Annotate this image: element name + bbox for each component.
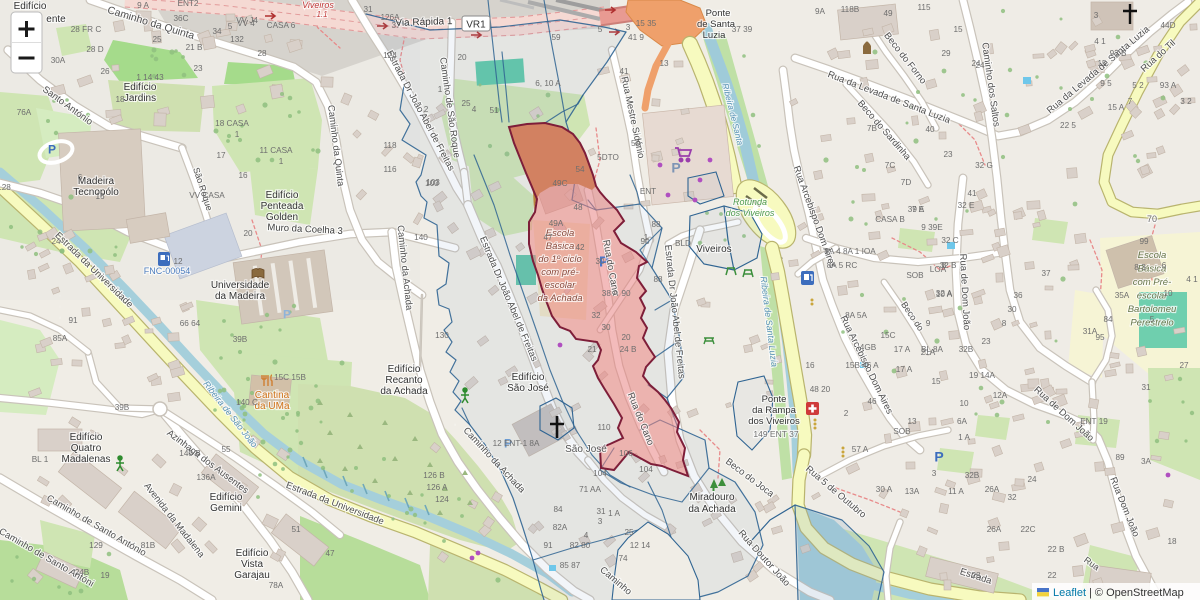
svg-text:22 5: 22 5	[1060, 121, 1076, 130]
svg-text:30: 30	[1007, 305, 1017, 314]
svg-text:28 D: 28 D	[86, 45, 103, 54]
svg-text:8 3: 8 3	[1134, 263, 1146, 272]
svg-text:3A: 3A	[1141, 457, 1152, 466]
svg-text:22 B: 22 B	[1048, 545, 1065, 554]
svg-text:ENT2: ENT2	[178, 0, 199, 8]
svg-text:76A: 76A	[17, 108, 32, 117]
svg-text:6: 6	[1162, 261, 1167, 270]
svg-text:1: 1	[438, 85, 443, 94]
svg-text:32: 32	[1007, 493, 1017, 502]
svg-text:32 C: 32 C	[941, 236, 958, 245]
svg-text:26A: 26A	[987, 525, 1002, 534]
svg-text:Vista: Vista	[241, 559, 263, 570]
svg-text:11 CASA: 11 CASA	[259, 146, 293, 155]
svg-text:24: 24	[1027, 475, 1037, 484]
svg-text:VV CASA: VV CASA	[189, 191, 225, 200]
svg-text:104: 104	[639, 465, 653, 474]
svg-text:46: 46	[867, 397, 877, 406]
svg-text:103: 103	[425, 179, 439, 188]
svg-text:1 14 43: 1 14 43	[136, 73, 164, 82]
svg-text:32 G: 32 G	[975, 161, 993, 170]
svg-text:124: 124	[383, 51, 397, 60]
svg-text:85A: 85A	[53, 334, 68, 343]
svg-text:Viveiros: Viveiros	[302, 0, 334, 10]
svg-text:27: 27	[1179, 361, 1189, 370]
svg-text:VR1: VR1	[466, 20, 486, 31]
svg-text:1: 1	[279, 157, 284, 166]
svg-text:3: 3	[1094, 11, 1099, 20]
svg-text:11 A: 11 A	[948, 487, 964, 496]
svg-text:140 C: 140 C	[236, 398, 258, 407]
svg-text:30: 30	[595, 257, 605, 266]
svg-text:Gemini: Gemini	[210, 503, 242, 514]
svg-text:3: 3	[626, 23, 631, 32]
svg-text:7D: 7D	[901, 178, 912, 187]
svg-text:4 1: 4 1	[1186, 275, 1198, 284]
svg-text:P: P	[283, 308, 291, 322]
svg-text:Edifício: Edifício	[14, 1, 47, 12]
svg-text:6: 6	[78, 173, 83, 182]
svg-text:ENT 19: ENT 19	[1080, 417, 1108, 426]
svg-text:37: 37	[391, 21, 401, 30]
svg-text:9 A: 9 A	[137, 1, 149, 10]
svg-text:88: 88	[651, 220, 661, 229]
svg-text:20: 20	[621, 333, 631, 342]
svg-text:3: 3	[598, 517, 603, 526]
svg-text:39B: 39B	[233, 335, 248, 344]
svg-text:Quatro: Quatro	[71, 443, 102, 454]
svg-text:BLD: BLD	[675, 239, 691, 248]
svg-text:12 14: 12 14	[630, 541, 651, 550]
svg-text:Escola: Escola	[1138, 250, 1167, 261]
svg-text:SOB: SOB	[906, 271, 924, 280]
svg-text:129: 129	[89, 541, 103, 550]
svg-text:6, 10 A: 6, 10 A	[535, 79, 561, 88]
svg-text:78A: 78A	[269, 581, 284, 590]
svg-text:8: 8	[942, 261, 947, 270]
svg-text:31: 31	[1141, 383, 1151, 392]
svg-text:15: 15	[931, 377, 941, 386]
svg-text:24: 24	[51, 237, 61, 246]
svg-text:CASA B: CASA B	[875, 215, 905, 224]
svg-text:dos Viveiros: dos Viveiros	[726, 208, 775, 218]
svg-text:15: 15	[1097, 59, 1107, 68]
svg-text:8A 4 8A 1 IOA: 8A 4 8A 1 IOA	[824, 247, 876, 256]
svg-text:51: 51	[489, 106, 499, 115]
svg-text:28 FR C: 28 FR C	[71, 25, 102, 34]
svg-text:9A: 9A	[815, 7, 826, 16]
svg-text:48 20: 48 20	[810, 385, 831, 394]
svg-text:SOB: SOB	[893, 427, 911, 436]
svg-text:74: 74	[618, 554, 628, 563]
svg-text:Via Rápida 1: Via Rápida 1	[395, 16, 453, 29]
svg-text:do 1º ciclo: do 1º ciclo	[538, 254, 582, 265]
svg-text:91: 91	[68, 316, 78, 325]
svg-text:84: 84	[1103, 315, 1113, 324]
svg-text:126 A: 126 A	[427, 483, 448, 492]
svg-text:P: P	[934, 448, 943, 464]
svg-text:85 87: 85 87	[560, 561, 581, 570]
svg-text:Edifício: Edifício	[512, 372, 545, 383]
svg-text:1 A: 1 A	[608, 509, 620, 518]
svg-text:7C: 7C	[885, 161, 896, 170]
svg-text:130: 130	[435, 331, 449, 340]
svg-text:49C: 49C	[552, 179, 567, 188]
svg-text:19: 19	[100, 571, 110, 580]
svg-text:de Santa: de Santa	[697, 19, 736, 30]
svg-text:55: 55	[221, 445, 231, 454]
svg-text:Miradouro: Miradouro	[689, 492, 734, 503]
svg-text:4 1: 4 1	[1094, 37, 1106, 46]
svg-text:P: P	[48, 143, 56, 157]
svg-text:8: 8	[1002, 319, 1007, 328]
svg-text:Edifício: Edifício	[124, 82, 157, 93]
svg-text:140 B: 140 B	[179, 449, 201, 458]
svg-text:9 39E: 9 39E	[921, 223, 943, 232]
svg-text:5A: 5A	[631, 139, 642, 148]
svg-text:12: 12	[173, 257, 183, 266]
svg-text:124: 124	[435, 495, 449, 504]
svg-text:Penteada: Penteada	[261, 201, 304, 212]
svg-text:dos Viveiros: dos Viveiros	[748, 416, 800, 427]
svg-text:132: 132	[230, 35, 244, 44]
svg-text:88: 88	[653, 275, 663, 284]
svg-text:54: 54	[575, 165, 585, 174]
svg-text:66 64: 66 64	[180, 319, 201, 328]
svg-text:19 14A: 19 14A	[969, 371, 995, 380]
svg-text:84: 84	[553, 505, 563, 514]
svg-text:17 A: 17 A	[894, 345, 911, 354]
svg-text:5: 5	[1150, 315, 1155, 324]
svg-text:57 A: 57 A	[852, 445, 869, 454]
svg-text:16: 16	[95, 192, 105, 201]
svg-text:2: 2	[424, 105, 429, 114]
svg-text:89: 89	[1115, 453, 1125, 462]
svg-text:Ponte: Ponte	[706, 8, 731, 19]
svg-text:118: 118	[383, 141, 396, 150]
svg-text:Jardins: Jardins	[124, 93, 156, 104]
svg-text:93 A: 93 A	[1160, 81, 1177, 90]
svg-text:5DTO: 5DTO	[597, 153, 619, 162]
svg-text:30 A: 30 A	[876, 485, 893, 494]
svg-text:10: 10	[959, 399, 969, 408]
svg-text:110: 110	[597, 423, 610, 432]
svg-text:9: 9	[926, 319, 931, 328]
svg-text:17 A: 17 A	[896, 365, 913, 374]
svg-text:17: 17	[216, 151, 226, 160]
svg-text:Bartolomeu: Bartolomeu	[1128, 304, 1177, 315]
svg-text:FNC-00054: FNC-00054	[144, 266, 191, 276]
svg-text:Edifício: Edifício	[266, 190, 299, 201]
svg-text:8A 5 RC: 8A 5 RC	[827, 261, 858, 270]
svg-text:Madeira: Madeira	[78, 176, 115, 187]
svg-text:Luzia: Luzia	[703, 30, 726, 41]
svg-text:15C 15B: 15C 15B	[274, 373, 306, 382]
svg-text:12A: 12A	[993, 391, 1008, 400]
svg-text:1 A: 1 A	[958, 433, 970, 442]
svg-text:15 35: 15 35	[636, 19, 657, 28]
svg-text:34: 34	[212, 27, 222, 36]
svg-text:104: 104	[593, 469, 607, 478]
svg-text:48: 48	[573, 203, 583, 212]
svg-text:32: 32	[591, 311, 601, 320]
svg-text:Viveiros: Viveiros	[696, 244, 731, 255]
svg-text:da Madeira: da Madeira	[215, 291, 265, 302]
svg-text:41: 41	[967, 189, 977, 198]
svg-text:2: 2	[844, 409, 849, 418]
svg-text:25: 25	[461, 99, 471, 108]
svg-text:CASA 6: CASA 6	[267, 21, 296, 30]
svg-text:41: 41	[619, 67, 629, 76]
svg-text:10: 10	[1163, 289, 1173, 298]
svg-text:47: 47	[543, 233, 553, 242]
svg-text:30: 30	[601, 323, 611, 332]
svg-text:7B: 7B	[867, 124, 878, 133]
svg-text:Rotunda: Rotunda	[733, 197, 767, 207]
svg-text:Universidade: Universidade	[211, 280, 270, 291]
svg-text:16: 16	[805, 361, 815, 370]
svg-text:Ponte: Ponte	[762, 394, 787, 405]
svg-text:ENT: ENT	[640, 187, 656, 196]
svg-text:26A: 26A	[985, 485, 1000, 494]
svg-text:Madalenas: Madalenas	[62, 454, 111, 465]
svg-text:da Achada: da Achada	[380, 386, 428, 397]
svg-text:22C: 22C	[1020, 525, 1035, 534]
svg-text:39 A: 39 A	[908, 205, 925, 214]
svg-text:49A: 49A	[549, 219, 564, 228]
svg-text:39B: 39B	[115, 403, 130, 412]
svg-text:35A: 35A	[1115, 291, 1130, 300]
svg-text:1: 1	[235, 130, 240, 139]
svg-text:21A: 21A	[921, 348, 936, 357]
svg-text:49: 49	[883, 9, 893, 18]
svg-text:106: 106	[619, 449, 633, 458]
svg-text:São José: São José	[565, 444, 607, 455]
svg-text:24 B: 24 B	[620, 345, 637, 354]
svg-text:91: 91	[543, 541, 553, 550]
svg-text:99: 99	[1139, 237, 1149, 246]
svg-text:Cantina: Cantina	[255, 390, 290, 401]
svg-text:4: 4	[472, 105, 477, 114]
svg-text:90: 90	[640, 237, 650, 246]
svg-text:15: 15	[953, 25, 963, 34]
svg-text:13: 13	[659, 59, 669, 68]
svg-text:22: 22	[1047, 571, 1057, 580]
svg-text:40: 40	[925, 125, 935, 134]
svg-text:Básica: Básica	[546, 241, 575, 252]
svg-text:82A: 82A	[553, 523, 568, 532]
svg-text:20: 20	[243, 229, 253, 238]
svg-text:| © OpenStreetMap: | © OpenStreetMap	[1089, 587, 1184, 599]
svg-text:25: 25	[624, 528, 634, 537]
svg-text:128: 128	[0, 183, 11, 192]
svg-text:59: 59	[551, 33, 561, 42]
svg-text:37 39: 37 39	[732, 25, 753, 34]
svg-text:da Rampa: da Rampa	[752, 405, 797, 416]
svg-text:12 ENT-1 8A: 12 ENT-1 8A	[493, 439, 540, 448]
svg-text:Edifício: Edifício	[236, 548, 269, 559]
svg-text:41 9: 41 9	[628, 33, 644, 42]
svg-text:16: 16	[238, 171, 248, 180]
svg-text:ente: ente	[46, 14, 66, 25]
svg-text:4: 4	[584, 531, 589, 540]
svg-text:28: 28	[257, 49, 267, 58]
svg-text:9 5: 9 5	[1100, 79, 1112, 88]
svg-text:140: 140	[414, 233, 428, 242]
svg-text:da Achada: da Achada	[688, 504, 736, 515]
svg-text:3 2: 3 2	[1180, 97, 1192, 106]
svg-text:da UMa: da UMa	[254, 401, 289, 412]
svg-text:6A: 6A	[957, 417, 968, 426]
svg-text:3: 3	[932, 469, 937, 478]
svg-text:Leaflet: Leaflet	[1053, 587, 1086, 599]
svg-text:VV 4: VV 4	[237, 19, 255, 28]
svg-text:71 AA: 71 AA	[579, 485, 601, 494]
svg-text:com pré-: com pré-	[541, 267, 578, 278]
svg-text:Edifício: Edifício	[210, 492, 243, 503]
svg-text:18: 18	[1167, 537, 1177, 546]
svg-text:32B: 32B	[965, 471, 980, 480]
svg-text:BL 1: BL 1	[32, 455, 49, 464]
svg-text:32 E: 32 E	[958, 201, 975, 210]
svg-text:Recanto: Recanto	[385, 375, 423, 386]
svg-text:25: 25	[152, 35, 162, 44]
svg-text:23: 23	[193, 64, 203, 73]
svg-text:90: 90	[621, 289, 631, 298]
svg-text:Golden: Golden	[266, 212, 298, 223]
svg-text:115: 115	[917, 3, 930, 12]
svg-text:24B: 24B	[75, 568, 90, 577]
svg-text:28: 28	[971, 571, 981, 580]
svg-text:15C: 15C	[880, 331, 895, 340]
svg-text:31: 31	[596, 507, 606, 516]
svg-text:47: 47	[325, 549, 335, 558]
svg-text:da Achada: da Achada	[537, 293, 582, 304]
svg-text:com Pré-: com Pré-	[1133, 277, 1172, 288]
svg-text:44D: 44D	[1160, 21, 1175, 30]
svg-text:18: 18	[115, 95, 125, 104]
svg-text:5 2: 5 2	[1132, 81, 1144, 90]
svg-text:20: 20	[457, 53, 467, 62]
svg-text:93 B: 93 B	[1110, 49, 1127, 58]
svg-text:13: 13	[907, 417, 917, 426]
svg-text:82 80: 82 80	[570, 541, 591, 550]
svg-text:23: 23	[943, 150, 953, 159]
svg-text:Edifício: Edifício	[70, 432, 103, 443]
svg-text:26: 26	[100, 67, 110, 76]
svg-text:15 A: 15 A	[1108, 103, 1125, 112]
svg-text:31A: 31A	[1083, 327, 1098, 336]
svg-text:116: 116	[383, 165, 396, 174]
svg-text:24: 24	[971, 59, 981, 68]
svg-text:36C: 36C	[173, 14, 188, 23]
svg-text:18 CASA: 18 CASA	[215, 119, 249, 128]
svg-text:38 A: 38 A	[602, 289, 619, 298]
svg-text:5: 5	[228, 22, 233, 31]
svg-text:51: 51	[291, 525, 301, 534]
svg-text:21 B: 21 B	[186, 43, 203, 52]
svg-text:21: 21	[587, 345, 597, 354]
svg-text:5: 5	[598, 25, 603, 34]
svg-text:32B: 32B	[959, 345, 974, 354]
svg-text:23: 23	[981, 337, 991, 346]
svg-text:31: 31	[363, 5, 373, 14]
svg-text:Garajau: Garajau	[234, 570, 270, 581]
svg-text:81B: 81B	[141, 541, 156, 550]
svg-text:149 ENT 37: 149 ENT 37	[753, 429, 798, 439]
svg-text:Edifício: Edifício	[388, 364, 421, 375]
svg-text:15B 46 A: 15B 46 A	[845, 361, 879, 370]
svg-text:escolar: escolar	[545, 280, 576, 291]
svg-text:126 B: 126 B	[423, 471, 445, 480]
svg-text:70: 70	[1147, 214, 1157, 224]
svg-text:13A: 13A	[905, 487, 920, 496]
svg-text:1.1: 1.1	[316, 10, 327, 19]
svg-text:42: 42	[575, 243, 585, 252]
svg-text:136A: 136A	[196, 473, 216, 482]
svg-text:29: 29	[941, 49, 951, 58]
svg-text:7: 7	[1128, 97, 1133, 106]
svg-text:32 A: 32 A	[936, 289, 953, 298]
svg-text:São José: São José	[507, 383, 549, 394]
svg-text:30A: 30A	[51, 56, 66, 65]
svg-text:4GB: 4GB	[860, 343, 877, 352]
svg-text:37: 37	[1041, 269, 1051, 278]
svg-text:36: 36	[1013, 291, 1023, 300]
svg-text:118B: 118B	[841, 5, 860, 14]
svg-text:8A 5A: 8A 5A	[845, 311, 867, 320]
